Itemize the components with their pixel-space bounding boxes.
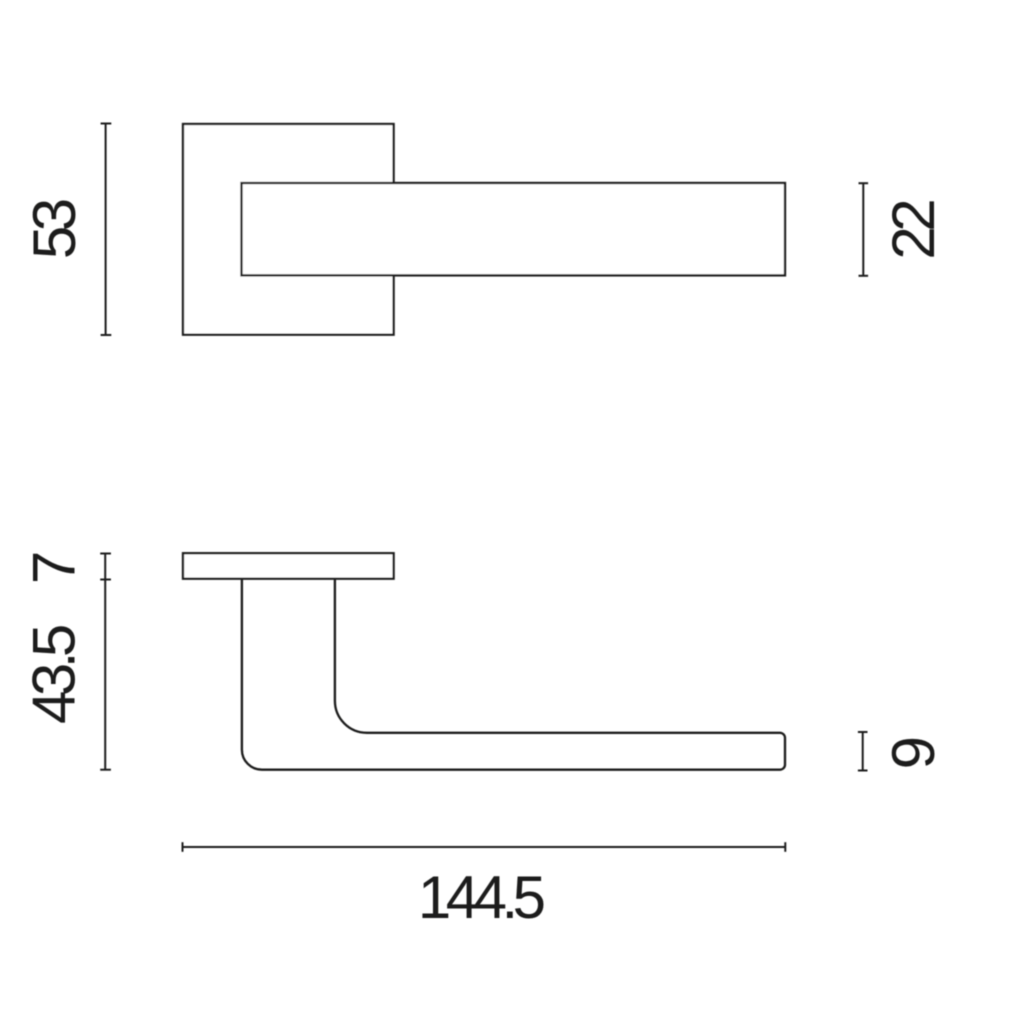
svg-text:43.5: 43.5	[21, 626, 88, 724]
svg-text:144.5: 144.5	[418, 864, 544, 931]
svg-text:53: 53	[21, 200, 88, 259]
svg-text:7: 7	[21, 553, 88, 584]
svg-text:9: 9	[880, 738, 947, 769]
svg-text:22: 22	[880, 201, 947, 260]
